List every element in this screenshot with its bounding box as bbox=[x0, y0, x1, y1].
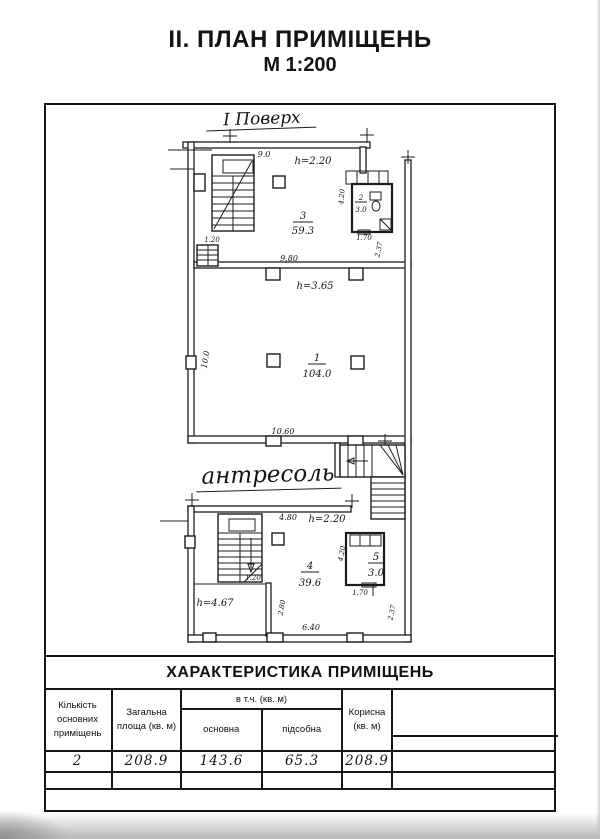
col-header-aux: підсобна bbox=[263, 710, 342, 750]
characteristics-table: ХАРАКТЕРИСТИКА ПРИМІЩЕНЬ Кількість основ… bbox=[44, 655, 556, 790]
table-header-row: Кількість основних приміщень Загальна пл… bbox=[44, 690, 556, 752]
pilaster bbox=[194, 174, 205, 191]
svg-text:6.40: 6.40 bbox=[302, 623, 320, 632]
svg-text:5: 5 bbox=[373, 552, 379, 563]
col-header-blank bbox=[393, 690, 556, 750]
svg-text:3: 3 bbox=[300, 211, 306, 222]
svg-text:4: 4 bbox=[306, 561, 313, 572]
table-values-row: 2 208.9 143.6 65.3 208.9 bbox=[44, 752, 556, 773]
mezzanine-caption: антресоль bbox=[196, 460, 342, 492]
svg-text:1.70: 1.70 bbox=[352, 589, 368, 597]
svg-text:1.20: 1.20 bbox=[204, 236, 220, 244]
floor1-columns bbox=[266, 176, 364, 446]
floor1-small-stair bbox=[197, 245, 218, 266]
floor1-walls bbox=[168, 128, 415, 642]
svg-text:h=2.20: h=2.20 bbox=[294, 156, 332, 167]
mezzanine-column bbox=[272, 533, 284, 545]
svg-text:2.37: 2.37 bbox=[373, 241, 384, 259]
svg-text:39.6: 39.6 bbox=[299, 578, 322, 589]
svg-text:2: 2 bbox=[358, 194, 364, 202]
value-count: 2 bbox=[44, 752, 113, 771]
floor1-staircase bbox=[212, 155, 254, 231]
value-blank bbox=[393, 752, 556, 771]
svg-text:2.37: 2.37 bbox=[386, 604, 397, 622]
svg-text:9.80: 9.80 bbox=[280, 254, 298, 263]
svg-text:10.0: 10.0 bbox=[200, 350, 212, 369]
radiator bbox=[346, 171, 388, 184]
scan-edge-right bbox=[596, 0, 600, 839]
window-mark bbox=[185, 536, 195, 548]
svg-text:3.0: 3.0 bbox=[355, 206, 367, 214]
svg-text:3.0: 3.0 bbox=[368, 568, 385, 579]
value-main: 143.6 bbox=[182, 752, 263, 771]
svg-text:h=4.67: h=4.67 bbox=[196, 598, 234, 609]
col-group-header: в т.ч. (кв. м) bbox=[182, 690, 341, 710]
toilet-icon bbox=[370, 192, 381, 200]
table-title: ХАРАКТЕРИСТИКА ПРИМІЩЕНЬ bbox=[44, 657, 556, 690]
svg-text:1.70: 1.70 bbox=[356, 234, 372, 242]
svg-text:h=2.20: h=2.20 bbox=[308, 514, 346, 525]
radiator bbox=[350, 535, 381, 546]
svg-text:h=3.65: h=3.65 bbox=[296, 281, 333, 292]
col-header-main: основна bbox=[182, 710, 263, 750]
mezzanine-staircase bbox=[218, 514, 262, 582]
mezzanine-room5 bbox=[346, 533, 384, 596]
svg-text:10.60: 10.60 bbox=[272, 427, 295, 436]
col-header-useful: Корисна (кв. м) bbox=[343, 690, 393, 750]
svg-text:1.20: 1.20 bbox=[245, 574, 261, 582]
svg-text:2.80: 2.80 bbox=[277, 599, 288, 617]
svg-text:104.0: 104.0 bbox=[303, 369, 332, 380]
window-mark bbox=[186, 356, 196, 369]
svg-text:4.80: 4.80 bbox=[278, 513, 297, 522]
scanned-document-page: ІІ. ПЛАН ПРИМІЩЕНЬ М 1:200 І Поверх bbox=[0, 0, 600, 839]
floor-plan-drawing: І Поверх bbox=[44, 103, 556, 655]
table-empty-row bbox=[44, 773, 556, 790]
svg-text:антресоль: антресоль bbox=[201, 460, 335, 489]
col-group-incl: в т.ч. (кв. м) основна підсобна bbox=[182, 690, 343, 750]
blank-col-divider bbox=[393, 735, 558, 737]
col-header-count: Кількість основних приміщень bbox=[44, 690, 113, 750]
scan-edge-corner bbox=[0, 809, 70, 839]
value-aux: 65.3 bbox=[263, 752, 343, 771]
svg-text:4.20: 4.20 bbox=[337, 188, 346, 206]
svg-text:59.3: 59.3 bbox=[292, 226, 314, 237]
value-useful: 208.9 bbox=[343, 752, 393, 771]
page-scale: М 1:200 bbox=[0, 54, 600, 77]
svg-text:9.0: 9.0 bbox=[258, 150, 271, 159]
scan-edge-bottom bbox=[0, 813, 600, 839]
svg-text:І Поверх: І Поверх bbox=[222, 108, 302, 131]
col-header-total: Загальна площа (кв. м) bbox=[113, 690, 182, 750]
svg-text:1: 1 bbox=[314, 353, 320, 364]
value-total: 208.9 bbox=[113, 752, 182, 771]
page-title: ІІ. ПЛАН ПРИМІЩЕНЬ bbox=[0, 26, 600, 54]
floor1-wc-room bbox=[346, 171, 392, 234]
floor1-caption: І Поверх bbox=[206, 107, 317, 131]
